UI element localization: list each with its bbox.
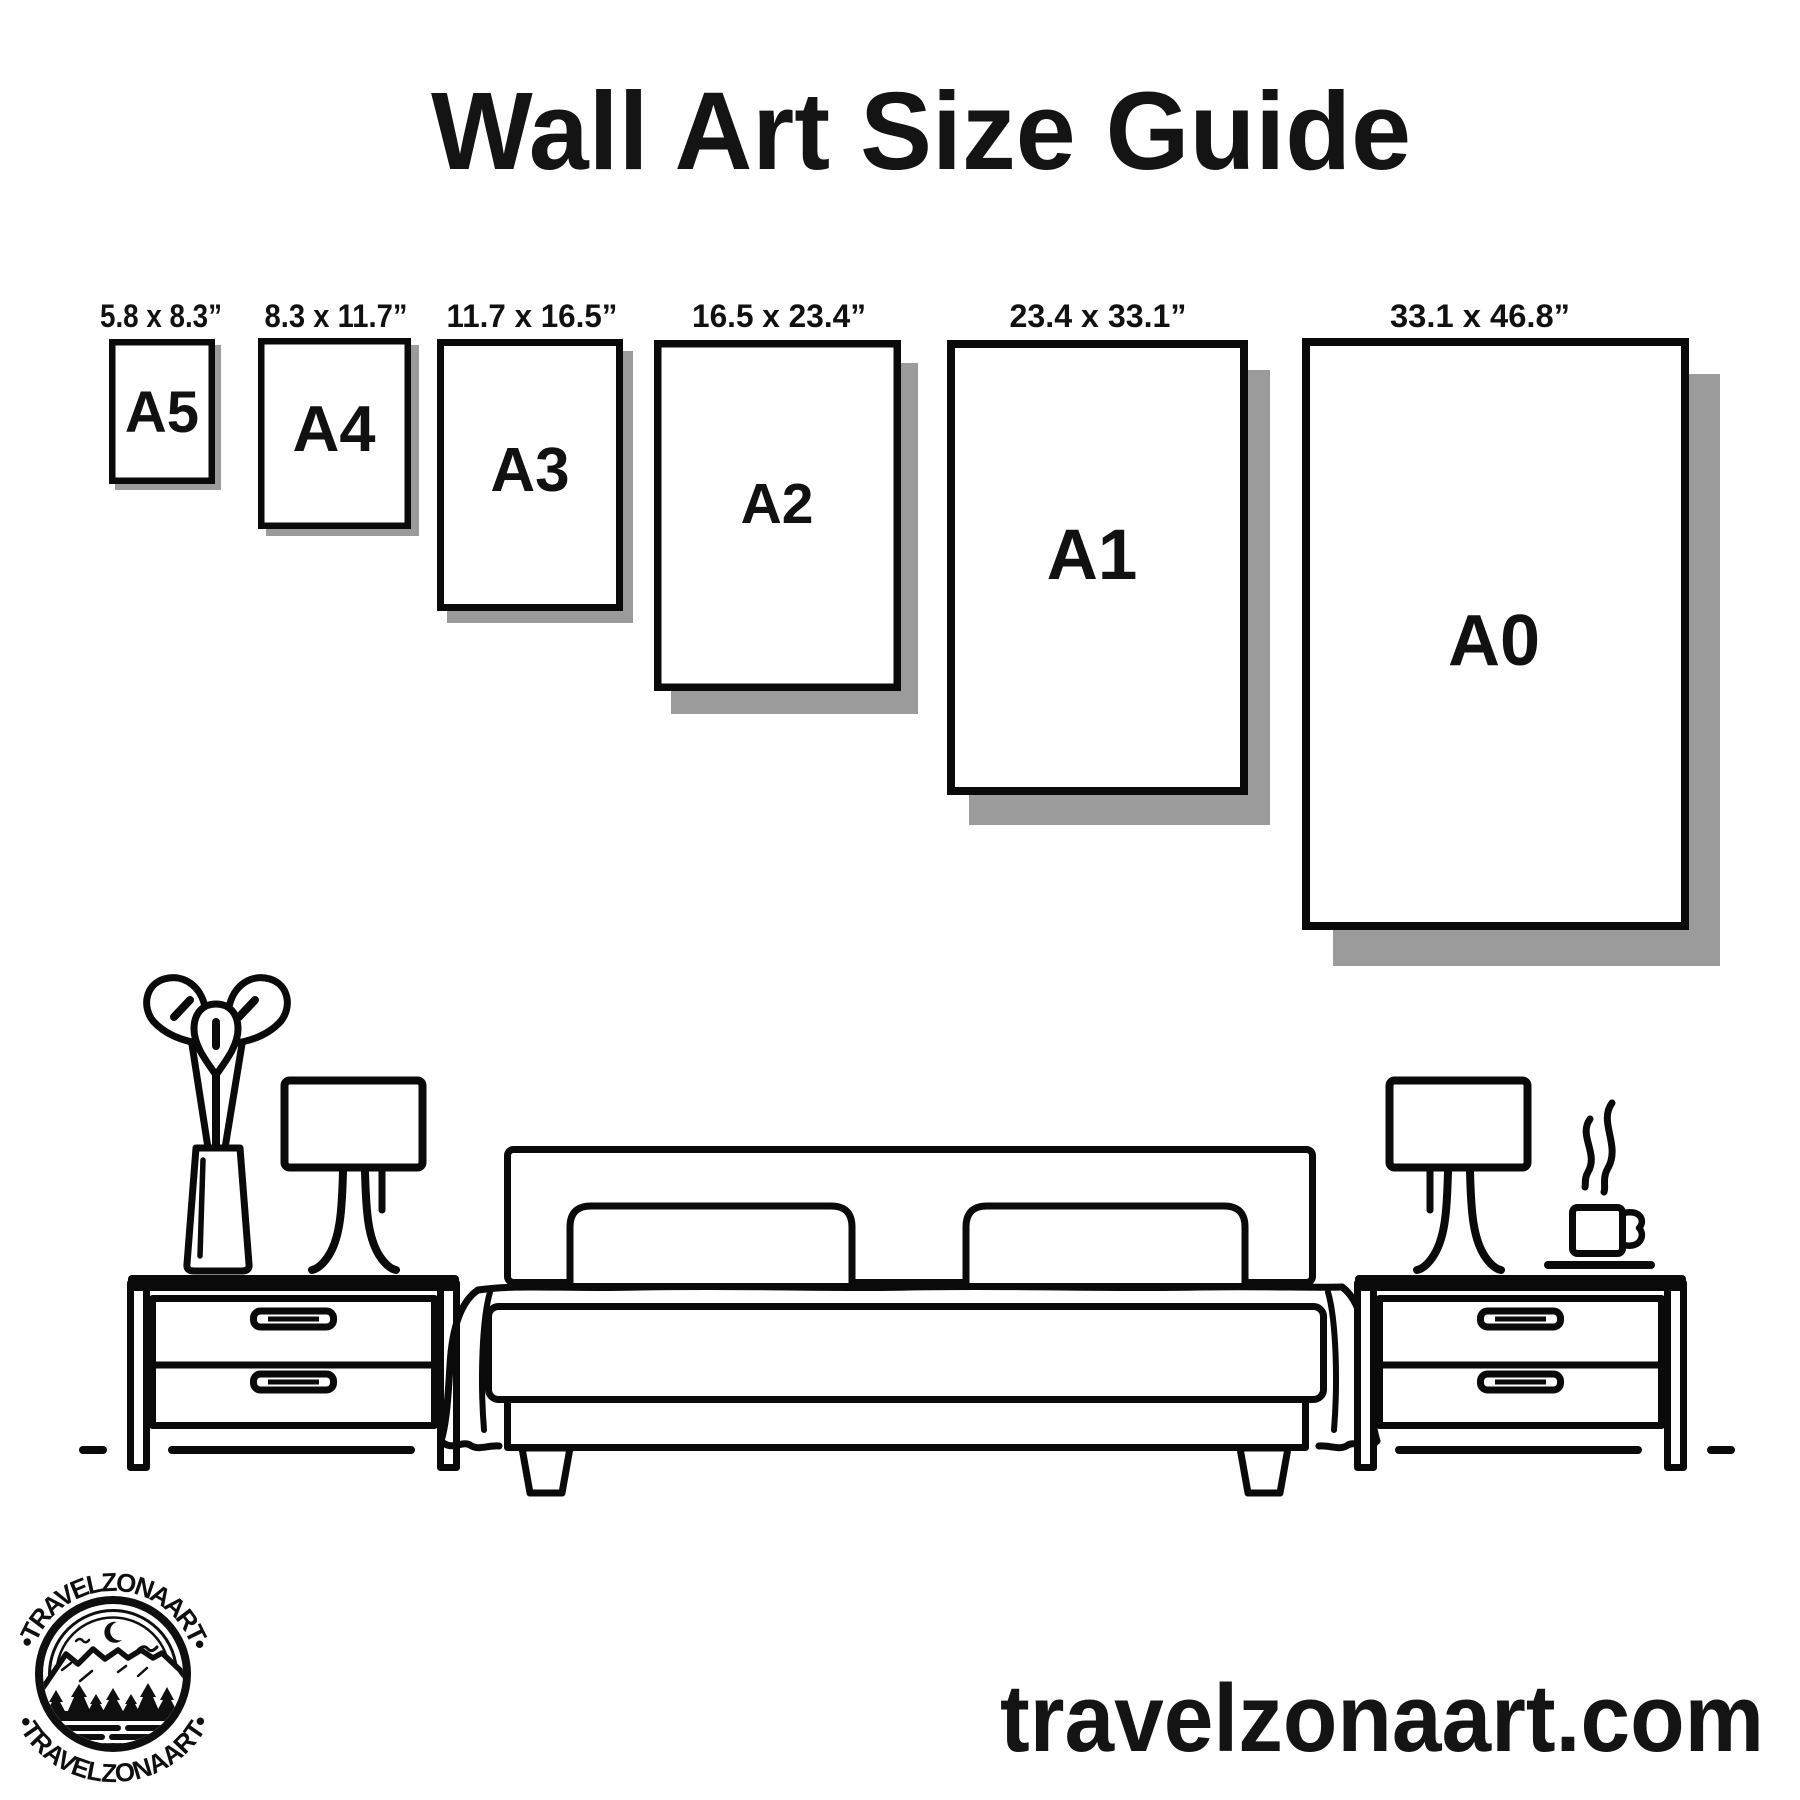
svg-text:travelzonaart.com: travelzonaart.com	[1000, 1665, 1764, 1772]
svg-text:Wall Art Size Guide: Wall Art Size Guide	[431, 70, 1411, 193]
svg-text:A1: A1	[1047, 516, 1138, 595]
svg-text:A2: A2	[741, 472, 814, 536]
svg-text:A3: A3	[490, 436, 569, 505]
svg-text:33.1 x 46.8”: 33.1 x 46.8”	[1390, 298, 1570, 334]
svg-text:8.3 x 11.7”: 8.3 x 11.7”	[265, 298, 408, 334]
svg-text:11.7 x 16.5”: 11.7 x 16.5”	[447, 298, 618, 334]
svg-text:A4: A4	[292, 392, 375, 465]
svg-text:A5: A5	[125, 380, 199, 445]
svg-text:A0: A0	[1448, 601, 1540, 681]
svg-text:16.5 x 23.4”: 16.5 x 23.4”	[692, 298, 866, 334]
svg-text:5.8 x 8.3”: 5.8 x 8.3”	[100, 298, 222, 334]
svg-text:23.4 x 33.1”: 23.4 x 33.1”	[1010, 298, 1187, 334]
